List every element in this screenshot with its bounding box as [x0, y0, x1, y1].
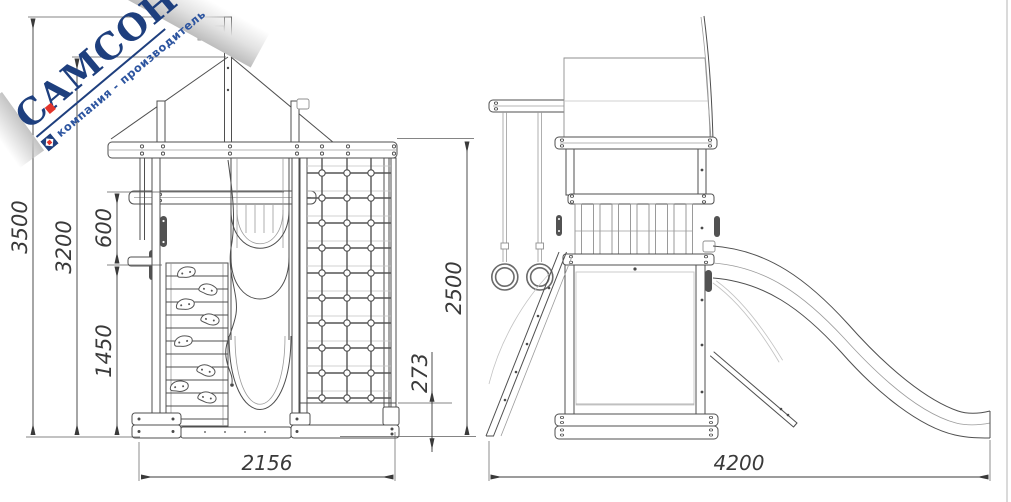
left-post	[152, 158, 160, 415]
dimension-2500: 2500	[442, 142, 467, 436]
page-edge	[1006, 0, 1008, 502]
dim-label-273: 273	[408, 353, 432, 393]
dimension-600: 600	[92, 194, 117, 264]
gym-rings	[492, 264, 553, 290]
technical-drawing: 3500 3200 600 1450 2156 273 2500	[0, 0, 1011, 502]
railing-side	[568, 194, 714, 254]
top-beam	[108, 142, 397, 158]
dim-label-2500: 2500	[442, 261, 466, 314]
dim-label-1450: 1450	[92, 324, 116, 377]
dimension-1450: 1450	[92, 267, 117, 436]
dimension-273: 273	[408, 352, 432, 452]
drawing-canvas: 3500 3200 600 1450 2156 273 2500	[0, 0, 1011, 502]
dimension-3500: 3500	[8, 19, 33, 436]
front-view	[108, 17, 399, 438]
slide-side	[703, 241, 990, 438]
dimension-4200: 4200	[491, 451, 989, 477]
ladder	[486, 252, 573, 436]
dim-label-2156: 2156	[242, 451, 293, 475]
dim-label-3200: 3200	[52, 220, 76, 273]
dim-label-4200: 4200	[714, 451, 765, 475]
roof-slope-right	[231, 57, 340, 148]
dim-label-600: 600	[92, 208, 116, 248]
climbing-wall	[166, 263, 228, 426]
dimension-2156: 2156	[141, 451, 394, 477]
side-view	[486, 16, 990, 439]
dim-label-3500: 3500	[8, 200, 32, 253]
roof-side	[564, 16, 713, 141]
base-side	[555, 414, 718, 439]
